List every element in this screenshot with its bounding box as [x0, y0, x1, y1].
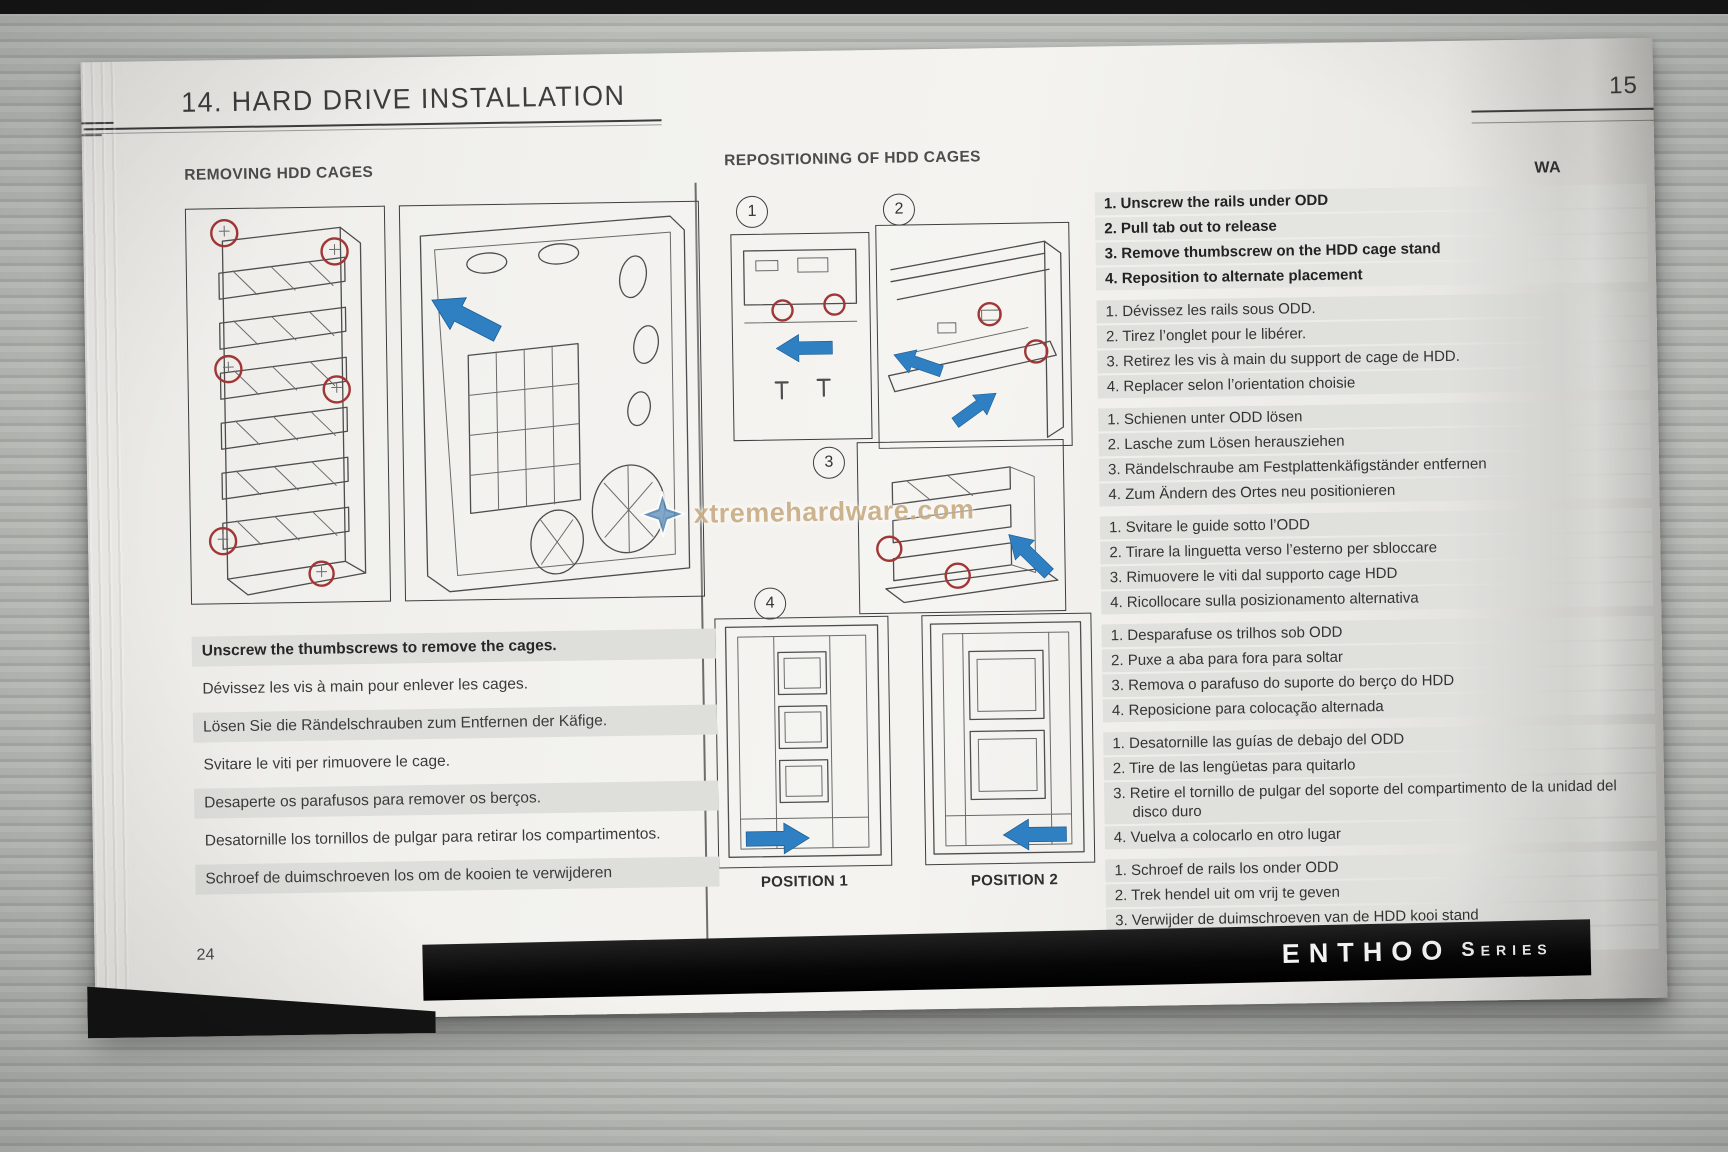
diagram-step2-release-tab	[875, 222, 1072, 449]
position1-drawing	[715, 617, 891, 868]
step-badge-3: 3	[813, 446, 845, 478]
footer-brand-bar: ENTHOO Series	[422, 919, 1591, 1000]
photo-of-manual: 14. HARD DRIVE INSTALLATION 15 WA REMOVI…	[0, 0, 1728, 1152]
next-page-rule	[1471, 108, 1653, 113]
lang-block-pt: 1. Desparafuse os trilhos sob ODD2. Puxe…	[1102, 616, 1655, 723]
watermark: xtremehardware.com	[639, 486, 974, 537]
page-stack-shadow	[87, 961, 436, 1038]
diagram-step1-odd-rails	[730, 232, 872, 441]
removing-instruction-fr: Dévissez les vis à main pour enlever les…	[192, 666, 716, 704]
brand-enthoo: ENTHOO	[1281, 935, 1451, 970]
diagram-position-2	[921, 613, 1095, 866]
case-interior-drawing	[400, 202, 704, 601]
blue-arrow	[776, 334, 832, 362]
step2-drawing	[876, 223, 1071, 448]
blue-arrow	[890, 343, 946, 383]
margin-tick	[81, 122, 113, 125]
step-badge-1: 1	[736, 196, 768, 228]
page-title: 14. HARD DRIVE INSTALLATION	[181, 80, 626, 119]
position2-drawing	[922, 614, 1094, 865]
lang-block-es: 1. Desatornille las guías de debajo del …	[1103, 724, 1657, 850]
screw-markers	[772, 294, 844, 320]
removing-instruction-de: Lösen Sie die Rändelschrauben zum Entfer…	[193, 704, 717, 742]
removing-instruction-it: Svitare le viti per rimuovere le cage.	[193, 742, 717, 780]
diagram-position-1	[714, 616, 892, 869]
section-heading-removing: REMOVING HDD CAGES	[184, 164, 373, 185]
blue-arrow	[948, 383, 1003, 432]
removing-instructions-list: Unscrew the thumbscrews to remove the ca…	[192, 629, 720, 903]
diagram-case-interior	[399, 201, 705, 602]
watermark-text: xtremehardware.com	[693, 494, 974, 529]
step-badge-4: 4	[754, 587, 786, 619]
lang-block-en: 1. Unscrew the rails under ODD2. Pull ta…	[1095, 184, 1648, 291]
next-page-number: 15	[1609, 72, 1638, 100]
blue-arrow	[746, 823, 809, 855]
manual-page: 14. HARD DRIVE INSTALLATION 15 WA REMOVI…	[81, 38, 1668, 1023]
removing-instruction-es: Desatornille los tornillos de pulgar par…	[195, 818, 719, 856]
instruction-step: 3. Retire el tornillo de pulgar del sopo…	[1104, 774, 1657, 825]
position-1-label: POSITION 1	[729, 872, 879, 891]
page-number: 24	[196, 946, 214, 964]
page-stack-edges	[81, 62, 136, 1023]
next-page-rule-shadow	[1472, 120, 1654, 124]
star-icon	[639, 491, 686, 538]
margin-tick	[82, 134, 102, 136]
repositioning-instructions-list: 1. Unscrew the rails under ODD2. Pull ta…	[1095, 184, 1659, 968]
removing-instruction-en: Unscrew the thumbscrews to remove the ca…	[192, 629, 716, 667]
removing-instruction-nl: Schroef de duimschroeven los om de kooie…	[195, 856, 719, 894]
lang-block-de: 1. Schienen unter ODD lösen2. Lasche zum…	[1098, 400, 1651, 507]
blue-arrow	[424, 284, 506, 349]
brand-series: Series	[1461, 937, 1553, 962]
step1-drawing	[731, 233, 871, 440]
removing-instruction-pt: Desaperte os parafusos para remover os b…	[194, 780, 718, 818]
step-badge-2: 2	[883, 193, 915, 225]
blue-arrow	[1003, 819, 1066, 851]
position-2-label: POSITION 2	[939, 871, 1089, 890]
section-heading-repositioning: REPOSITIONING OF HDD CAGES	[724, 148, 981, 170]
lang-block-it: 1. Svitare le guide sotto l’ODD2. Tirare…	[1100, 508, 1653, 615]
hdd-cage-tower-drawing	[186, 207, 390, 604]
thumbscrew-markers	[877, 536, 970, 589]
lang-block-fr: 1. Dévissez les rails sous ODD.2. Tirez …	[1096, 292, 1649, 399]
next-page-partial-heading: WA	[1534, 159, 1561, 177]
diagram-hdd-cage-tower	[185, 206, 391, 605]
